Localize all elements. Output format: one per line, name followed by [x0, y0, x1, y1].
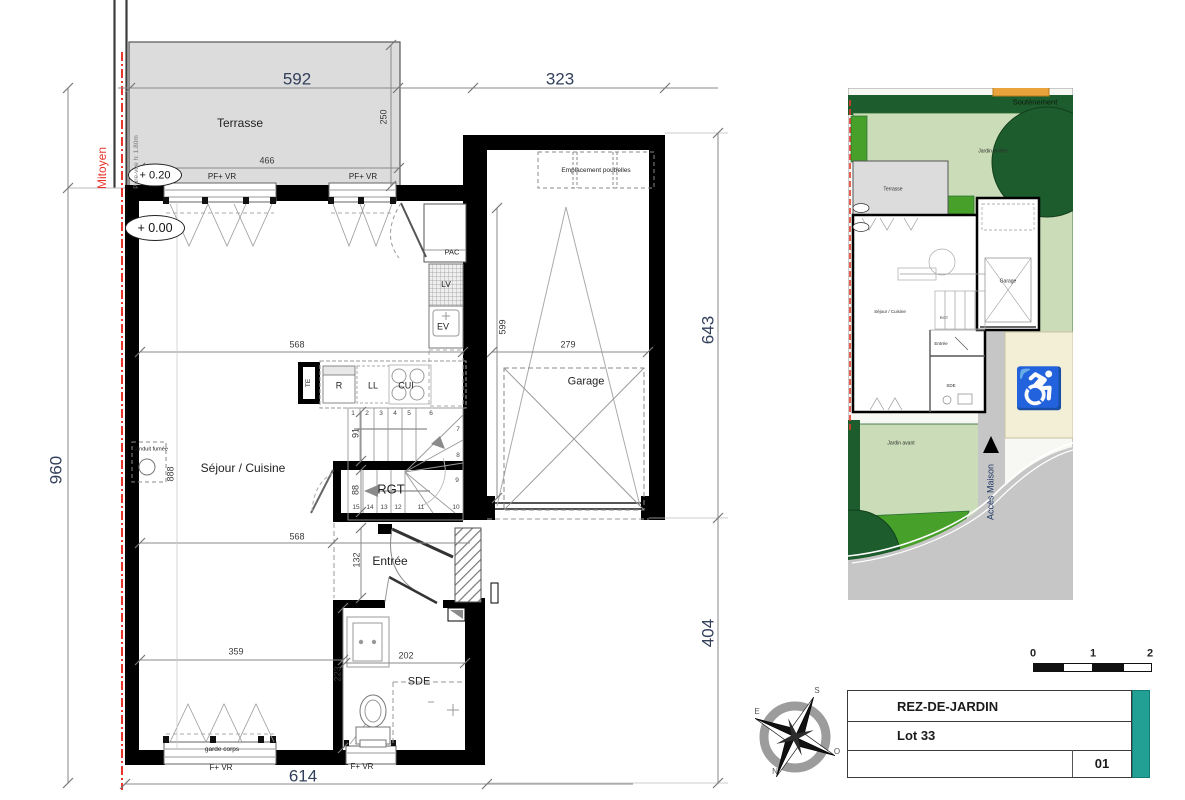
- stair-step: 8: [456, 453, 460, 460]
- site-soutenement-strip: [993, 87, 1049, 96]
- pf-vr-left-label: PF+ VR: [208, 173, 236, 181]
- dim-terrace-depth: 250: [380, 109, 389, 124]
- dim-stair-width: 91: [352, 428, 361, 438]
- stair-step: 6: [429, 411, 433, 418]
- acces-maison-label: Accès Maison: [987, 464, 996, 520]
- mini-entree-label: Entrée: [934, 342, 947, 347]
- sde-label: SDE: [408, 677, 431, 688]
- site-mini-garage: [977, 198, 1039, 330]
- compass-west-label: O: [834, 748, 840, 756]
- stair-step: 14: [366, 505, 373, 512]
- entree-label: Entrée: [372, 555, 407, 567]
- stair-step: 3: [379, 411, 383, 418]
- mini-sejour-label: Séjour / Cuisine: [874, 310, 906, 315]
- entry-post-hatched: [455, 528, 481, 602]
- main-plan: [63, 0, 728, 790]
- mini-sde-label: SDE: [946, 384, 955, 389]
- dim-entree-width: 132: [353, 552, 362, 567]
- scale-tick-2: 2: [1147, 649, 1153, 660]
- pf-vr-right-label: PF+ VR: [349, 173, 377, 181]
- dim-right-upper: 643: [700, 316, 717, 344]
- title-block-row-sheet: 01: [848, 750, 1131, 777]
- sejour-label: Séjour / Cuisine: [201, 462, 286, 474]
- scale-tick-1: 1: [1090, 649, 1096, 660]
- te-label: TE: [306, 379, 313, 387]
- dim-left-total: 960: [48, 456, 65, 484]
- stair-step: 4: [393, 411, 397, 418]
- pac-label: PAC: [445, 248, 460, 256]
- garde-corps-label: garde corps: [205, 747, 239, 754]
- stair-step: 9: [455, 478, 459, 485]
- lot-number: Lot 33: [897, 728, 935, 743]
- dim-total-width: 614: [289, 768, 317, 785]
- mini-rgt-label: RGT: [940, 316, 948, 320]
- sheet-title: REZ-DE-JARDIN: [897, 699, 998, 714]
- stair-step: 10: [452, 505, 459, 512]
- stair-step: 13: [380, 505, 387, 512]
- mitoyen-label: Mitoyen: [96, 147, 108, 189]
- ll-label: LL: [368, 382, 378, 391]
- jardin-arriere-label: Jardin arrière: [978, 150, 1007, 155]
- dim-terrace-inner: 466: [259, 157, 274, 166]
- title-block-accent-bar: [1132, 690, 1150, 778]
- ev-label: EV: [437, 323, 449, 332]
- handicap-icon: ♿: [1014, 369, 1064, 409]
- dim-garage-width: 279: [560, 341, 575, 350]
- cui-label: CUI: [398, 382, 414, 391]
- jardin-avant-label: Jardin avant: [887, 442, 914, 447]
- stair-step: 1: [351, 411, 355, 418]
- conduit-fumee-label: Conduit fumée: [132, 447, 168, 453]
- dim-sejour-upper: 568: [289, 341, 304, 350]
- dim-rgt-width: 88: [352, 485, 361, 495]
- dim-garage-top: 323: [546, 71, 574, 88]
- compass-north-label: N: [772, 768, 778, 776]
- kitchen-detail: [320, 203, 466, 408]
- site-jardin-avant: [848, 424, 991, 520]
- mini-garage-label: Garage: [1000, 280, 1017, 285]
- terrasse-label: Terrasse: [217, 117, 263, 129]
- dim-sejour-height: 888: [167, 466, 176, 481]
- floorplan-sheet: Terrasse 592 466 250 PF+ VR PF+ VR + 0.2…: [0, 0, 1185, 800]
- pare-vue-label: Pare-vue h: 1.80m: [134, 135, 141, 188]
- compass-south-label: S: [814, 687, 819, 695]
- soutenement-label: Soutènement: [1013, 98, 1058, 106]
- stair-step: 7: [456, 427, 460, 434]
- r-label: R: [336, 382, 343, 391]
- walls: [125, 135, 665, 765]
- f-vr-sde-label: F+ VR: [351, 763, 374, 771]
- scale-tick-0: 0: [1030, 649, 1036, 660]
- dim-right-lower: 404: [700, 619, 717, 647]
- garage-detail: [487, 152, 654, 519]
- bathroom-fixtures: [347, 617, 465, 747]
- f-vr-left-label: F+ VR: [210, 764, 233, 772]
- dim-sde-height: 223: [334, 666, 343, 681]
- emplacement-poubelles-label: Emplacement poubelles: [561, 168, 630, 175]
- sheet-number: 01: [1095, 756, 1109, 771]
- dim-bottom-left: 359: [228, 648, 243, 657]
- stair-step: 2: [365, 411, 369, 418]
- compass-east-label: E: [754, 708, 759, 716]
- rgt-label: RGT: [377, 483, 404, 496]
- title-block-row-lot: [848, 721, 1131, 751]
- plan-drawing: [0, 0, 1185, 800]
- stair-step: 5: [407, 411, 411, 418]
- dim-terrace-width: 592: [283, 71, 311, 88]
- dim-sejour-lower: 568: [289, 533, 304, 542]
- dim-garage-depth: 599: [499, 319, 508, 334]
- garage-label: Garage: [568, 377, 605, 388]
- lv-label: LV: [441, 280, 451, 289]
- mini-terrasse-label: Terrasse: [883, 188, 902, 193]
- stair-step: 15: [352, 505, 359, 512]
- compass-rose: [737, 679, 854, 796]
- stair-step: 11: [418, 505, 425, 512]
- dim-sde-width: 202: [398, 652, 413, 661]
- level-badge-ground: + 0.00: [125, 215, 185, 241]
- stair-step: 12: [394, 505, 401, 512]
- site-plan: [808, 87, 1102, 602]
